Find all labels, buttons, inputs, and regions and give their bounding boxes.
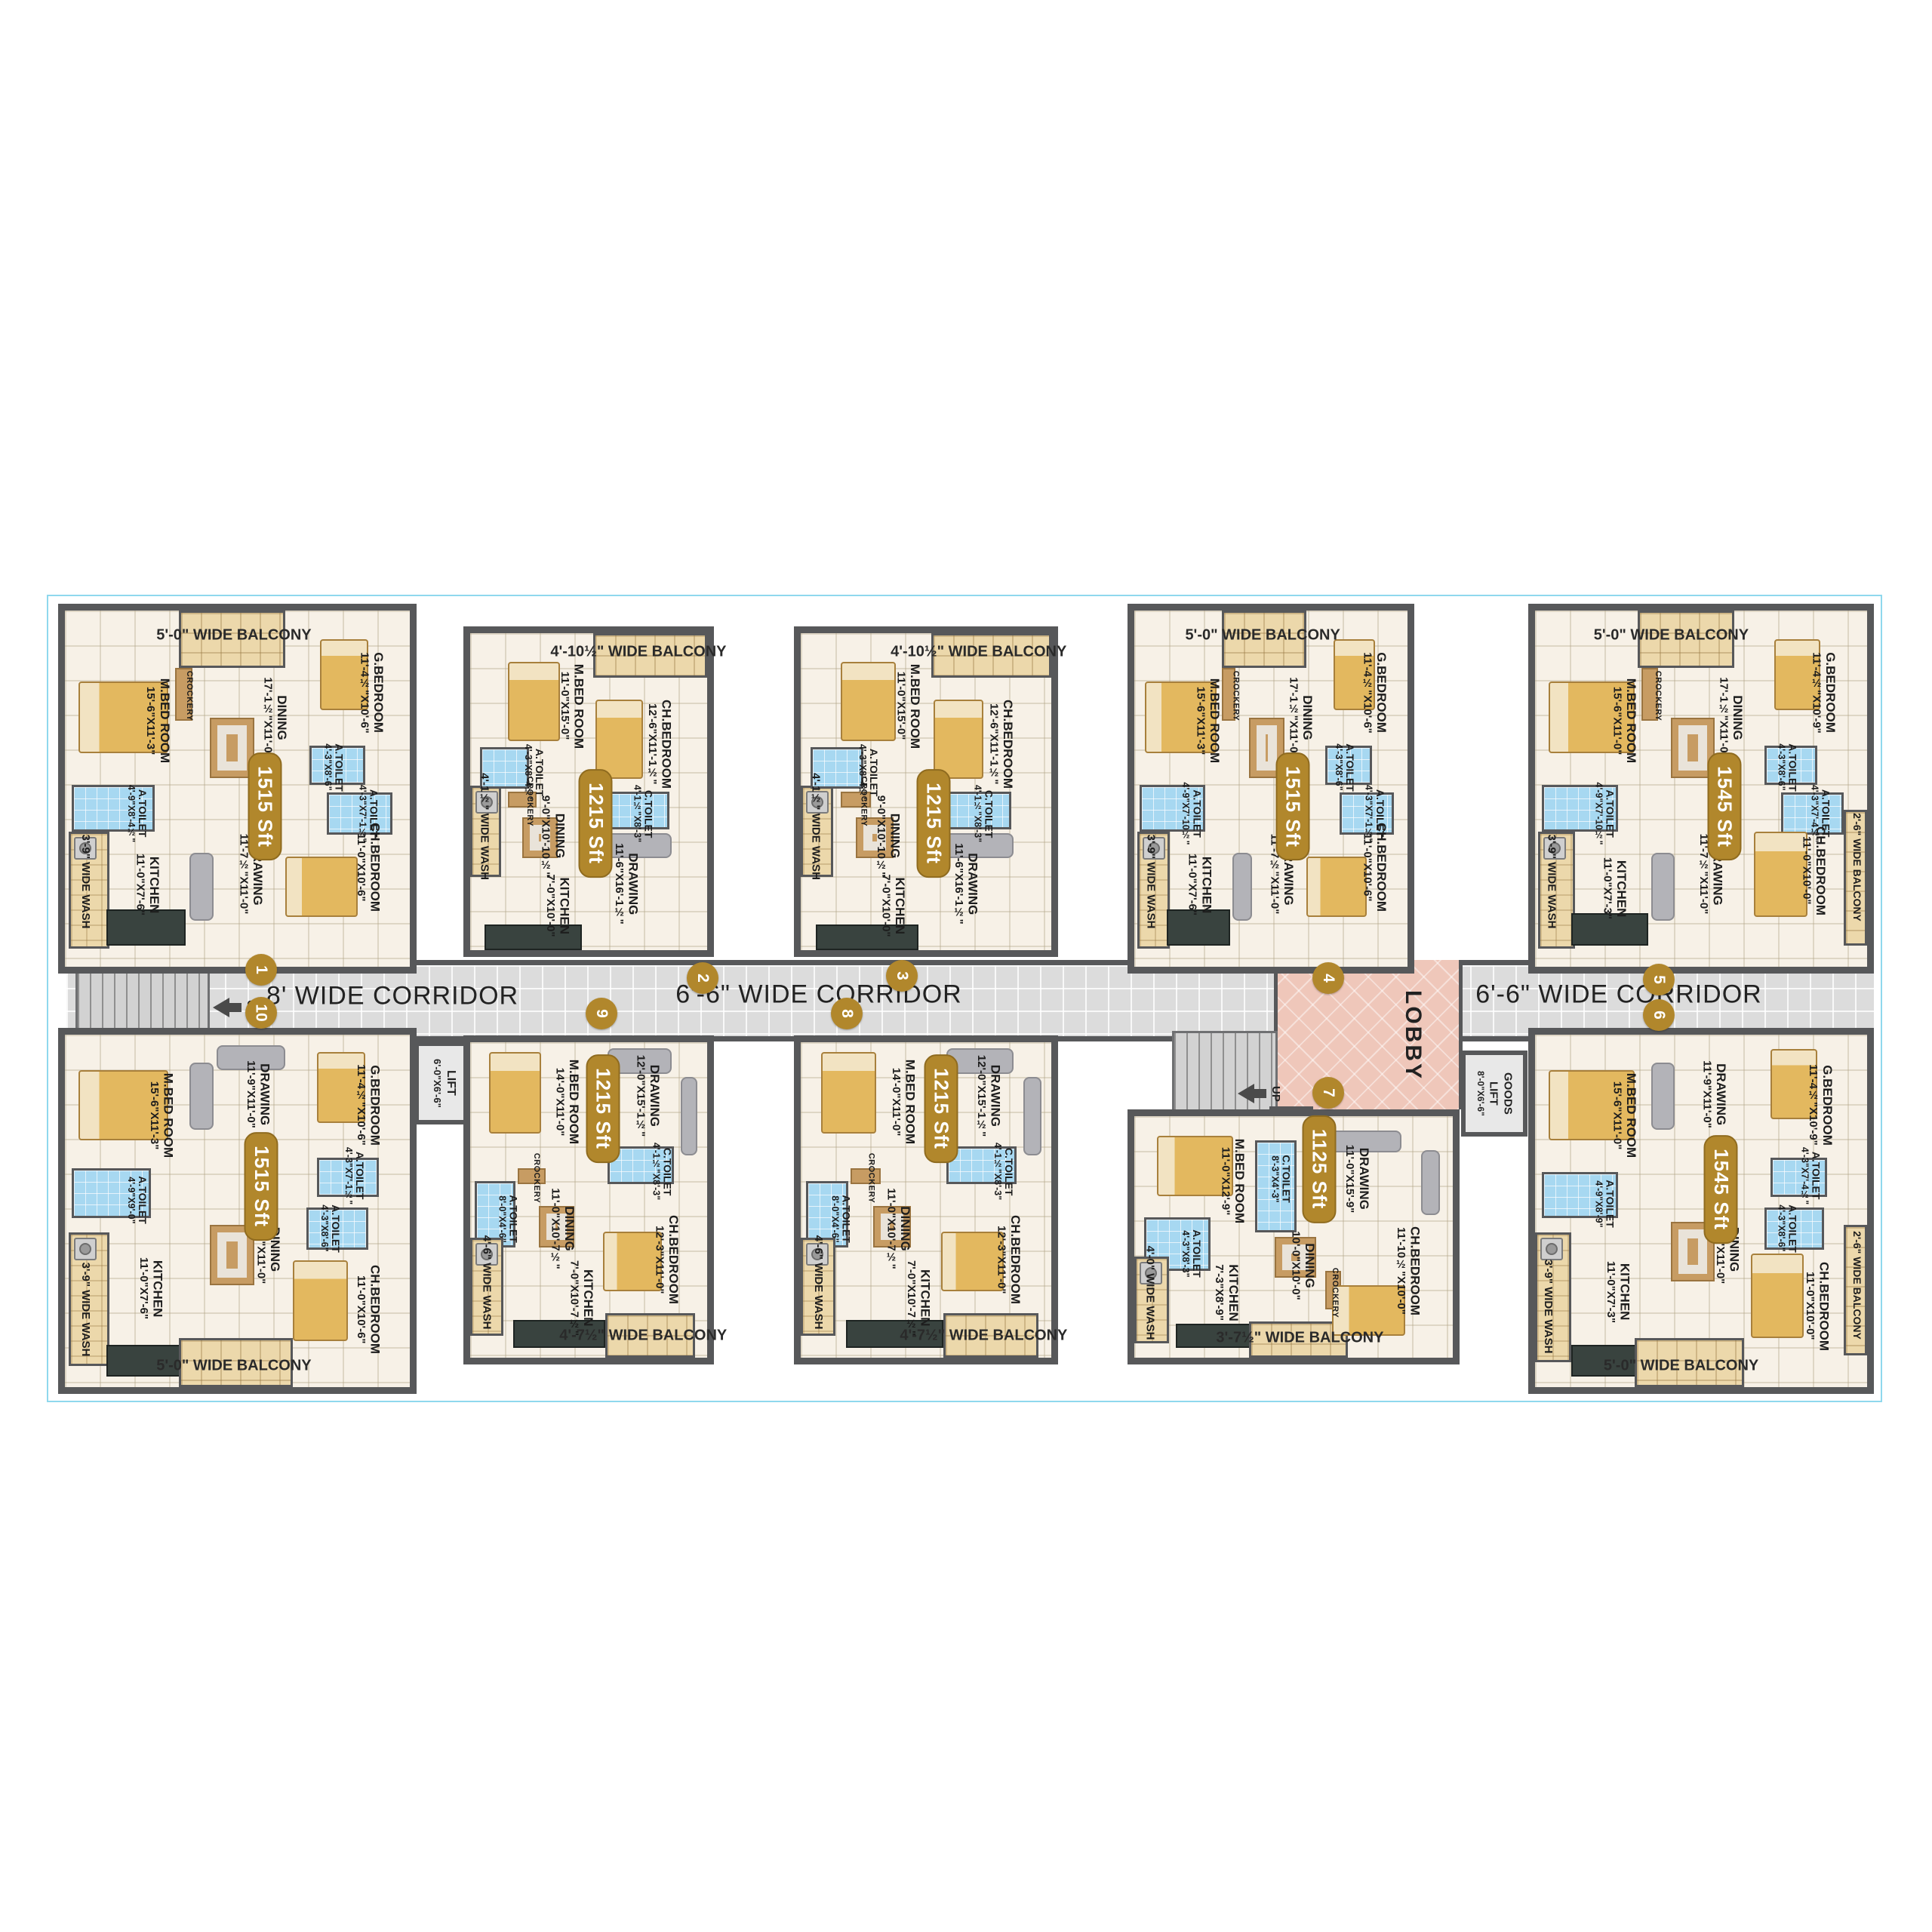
room-label: KITCHEN11'-0"X7'-6" (134, 854, 162, 915)
room-label: M.BED ROOM15'-6"X11'-3" (1194, 678, 1222, 763)
sofa-icon (1651, 853, 1675, 921)
room-label: M.BED ROOM11'-0"X15'-0" (894, 663, 922, 748)
unit-number-circle: 2 (687, 962, 718, 994)
room-label: CH.BEDROOM12'-6"X11'-1½" (646, 700, 674, 789)
toilet-label: C.TOILET4'-1½"X8'-3" (992, 1143, 1015, 1200)
toilet-label: C.TOILET4'-1½"X8'-3" (651, 1143, 673, 1200)
unit-number-circle: 9 (586, 998, 617, 1029)
room-label: M.BED ROOM11'-0"X15'-0" (558, 663, 586, 748)
room-label: DINING11'-0"X10'-7½" (549, 1188, 577, 1269)
room-label: CH.BEDROOM12'-3"X11'-0" (653, 1215, 681, 1304)
room-label: M.BED ROOM11'-0"X12'-9" (1219, 1139, 1247, 1223)
balcony-label: 5'-0" WIDE BALCONY (1594, 627, 1749, 645)
unit-number-circle: 3 (886, 960, 918, 992)
room-label: KITCHEN11'-0"X7'-3" (1601, 857, 1629, 919)
toilet-label: A.TOILET4'-3"X8'-6" (1776, 1204, 1798, 1253)
unit-number-circle: 10 (245, 997, 277, 1029)
room-label: DINING17'-1½"X11'-0" (1287, 677, 1315, 758)
area-badge: 1545 Sft (1704, 1136, 1738, 1244)
bed-icon (1751, 1254, 1804, 1338)
bed-icon (934, 700, 983, 779)
crockery-label: CROCKERY (1231, 671, 1241, 721)
wash-label: 4'-1½" WIDE WASH (809, 773, 822, 880)
room-label: DINING17'-1½"X11'-0" (261, 677, 289, 758)
unit-10: M.BED ROOM15'-6"X11'-3"DRAWING11'-9"X11'… (58, 1028, 417, 1394)
area-badge: 1515 Sft (245, 1132, 278, 1241)
room-label: DINING17'-1½"X11'-0" (1717, 677, 1745, 758)
arrow-icon (1238, 1084, 1254, 1103)
unit-9: M.BED ROOM14'-0"X11'-0"DRAWING12'-0"X15'… (463, 1035, 714, 1364)
room-label: M.BED ROOM14'-0"X11'-0" (890, 1060, 918, 1144)
unit-8: M.BED ROOM14'-0"X11'-0"DRAWING12'-0"X15'… (794, 1035, 1058, 1364)
unit-6: M.BED ROOM15'-6"X11'-0"DRAWING11'-9"X11'… (1528, 1028, 1874, 1394)
goods-lift-label: GOODS (1500, 1071, 1515, 1116)
balcony-label: 5'-0" WIDE BALCONY (1604, 1357, 1758, 1374)
wash-label: 4'-6" WIDE WASH (480, 1235, 493, 1329)
area-badge: 1515 Sft (1275, 752, 1309, 861)
balcony-label: 4'-7½" WIDE BALCONY (559, 1327, 727, 1344)
wash-label: 4'-0" WIDE WASH (1143, 1245, 1156, 1340)
corridor-label-middle: 6'-6" WIDE CORRIDOR (675, 980, 961, 1010)
unit-number-circle: 7 (1312, 1077, 1344, 1109)
area-badge: 1545 Sft (1707, 752, 1741, 861)
room-label: G.BEDROOM11'-4½"X10'-6" (358, 652, 386, 734)
unit-number-circle: 6 (1643, 999, 1675, 1031)
room-label: CH.BEDROOM11'-0"X10'-6" (355, 823, 383, 912)
balcony-label: 5'-0" WIDE BALCONY (156, 1357, 311, 1374)
goods-lift: GOODS LIFT 8'-0"X6'-6" (1461, 1051, 1527, 1137)
corridor-label-right: 6'-6" WIDE CORRIDOR (1475, 980, 1761, 1010)
room-label: M.BED ROOM15'-6"X11'-0" (1611, 678, 1638, 763)
balcony-label: 3'-7½" WIDE BALCONY (1216, 1330, 1383, 1347)
unit-number-circle: 4 (1312, 962, 1344, 994)
room-label: DRAWING11'-9"X11'-0" (1700, 1060, 1728, 1128)
up-arrow-lobby: UP (1238, 1084, 1282, 1103)
room-label: G.BEDROOM11'-4½"X10'-9" (1810, 652, 1838, 734)
room-label: KITCHEN7'-0"X10'-7½" (905, 1260, 933, 1336)
crockery-label: CROCKERY (532, 1152, 542, 1203)
room-label: M.BED ROOM15'-6"X11'-0" (1611, 1073, 1638, 1158)
balcony-label: 4'-10½" WIDE BALCONY (891, 644, 1066, 661)
toilet-label: A.TOILET4'-9"X8'-9" (1593, 1180, 1616, 1228)
room-label: KITCHEN11'-0"X7'-6" (137, 1257, 165, 1319)
sofa-icon (681, 1077, 697, 1156)
up-label: UP (1269, 1086, 1282, 1102)
room-label: DINING9'-0"X10'-10½" (539, 795, 567, 877)
washing-machine-icon (1540, 1238, 1563, 1260)
sofa-icon (1232, 853, 1251, 921)
wash-label: 3'-9" WIDE WASH (1542, 1259, 1555, 1353)
stairs-left (75, 966, 210, 1031)
balcony-label: 5'-0" WIDE BALCONY (156, 627, 311, 645)
sofa-icon (1421, 1150, 1440, 1215)
room-label: KITCHEN7'-3"X8'-9" (1213, 1264, 1241, 1321)
area-badge: 1215 Sft (916, 769, 950, 878)
toilet-label: A.TOILET4'-9"X7'-10½" (1593, 782, 1616, 844)
wash-label: 3'-9" WIDE WASH (79, 834, 92, 928)
sofa-icon (1651, 1063, 1675, 1130)
room-label: M.BED ROOM14'-0"X11'-0" (553, 1060, 581, 1144)
toilet-label: A.TOILET4'-3"X7'-1½" (343, 1147, 366, 1204)
wash-label: 4'-1½" WIDE WASH (478, 773, 491, 880)
bed-icon (595, 700, 643, 779)
sofa-icon (1023, 1077, 1041, 1156)
room-label: DRAWING11'-6"X16'-1½" (952, 843, 980, 924)
lift-dims: 6'-0"X6'-6" (431, 1059, 443, 1108)
unit-5: 5'-0" WIDE BALCONYM.BED ROOM15'-6"X11'-0… (1528, 604, 1874, 974)
bed-icon (1306, 857, 1367, 917)
sofa-icon (189, 853, 214, 921)
bed-icon (489, 1052, 541, 1134)
room-label: CH.BEDROOM11'-10½"X10'-0" (1395, 1226, 1423, 1315)
room-label: CH.BEDROOM11'-0"X10'-6" (1361, 823, 1389, 912)
toilet-label: A.TOILET4'-3"X8'-6" (1334, 743, 1356, 792)
area-badge: 1125 Sft (1302, 1115, 1336, 1223)
room-label: DRAWING12'-0"X15'-1½" (975, 1055, 1003, 1137)
unit-4: 5'-0" WIDE BALCONYM.BED ROOM15'-6"X11'-3… (1128, 604, 1414, 974)
room-label: DRAWING11'-9"X11'-0" (245, 1060, 272, 1128)
wash-label: 3'-9" WIDE WASH (1144, 834, 1157, 928)
unit-1: 5'-0" WIDE BALCONYM.BED ROOM15'-6"X11'-3… (58, 604, 417, 974)
balcony-label: 5'-0" WIDE BALCONY (1185, 627, 1340, 645)
bed-icon (508, 662, 560, 741)
lobby-label: LOBBY (1400, 990, 1426, 1081)
goods-lift-dims: 8'-0"X6'-6" (1475, 1071, 1486, 1116)
toilet-label: A.TOILET8'-0"X4'-6" (497, 1195, 519, 1243)
room-label: CH.BEDROOM11'-0"X10'-0" (1800, 826, 1828, 915)
lift-label: LIFT (443, 1059, 458, 1108)
crockery-label: CROCKERY (866, 1152, 876, 1203)
room-label: KITCHEN7'-0"X10'-7½" (568, 1260, 595, 1336)
toilet-label: A.TOILET4'-3"X7'-4½" (1799, 1147, 1822, 1204)
arrow-icon (213, 998, 229, 1017)
wash-label: 3'-9" WIDE WASH (79, 1263, 92, 1357)
unit-number-circle: 1 (245, 954, 277, 986)
balcony-v-label: 2'-6" WIDE BALCONY (1851, 1231, 1863, 1340)
crockery-label: CROCKERY (525, 776, 534, 826)
bed-icon (841, 662, 896, 741)
unit-number-circle: 8 (831, 998, 863, 1029)
bed-icon (285, 857, 358, 917)
crockery-label: CROCKERY (1653, 671, 1663, 721)
room-label: KITCHEN7'-0"X10'-0" (879, 875, 907, 937)
floor-plan-canvas: UP 8' WIDE CORRIDOR 6'-6" WIDE CORRIDOR … (0, 0, 1932, 1932)
room-label: DRAWING12'-0"X15'-1½" (634, 1055, 662, 1137)
room-label: DINING9'-0"X10'-10½" (875, 795, 903, 877)
toilet-label: A.TOILET4'-9"X9'-0" (126, 1177, 149, 1225)
room-label: DINING11'-0"X10'-7½" (884, 1188, 912, 1269)
room-label: G.BEDROOM11'-4½"X10'-9" (1807, 1065, 1835, 1146)
crockery-label: CROCKERY (1331, 1267, 1340, 1318)
room-label: CH.BEDROOM11'-0"X10'-6" (355, 1265, 383, 1354)
room-label: KITCHEN11'-0"X7'-3" (1604, 1261, 1632, 1323)
bed-icon (821, 1052, 876, 1134)
balcony-label: 4'-7½" WIDE BALCONY (900, 1327, 1067, 1344)
balcony-v-label: 2'-6" WIDE BALCONY (1851, 813, 1863, 921)
toilet-label: A.TOILET4'-9"X7'-10½" (1180, 782, 1203, 844)
room-label: G.BEDROOM11'-4½"X10'-6" (355, 1065, 383, 1146)
unit-3: 4'-10½" WIDE BALCONYM.BED ROOM11'-0"X15'… (794, 626, 1058, 957)
goods-lift-label2: LIFT (1486, 1071, 1500, 1116)
room-label: CH.BEDROOM12'-3"X11'-0" (995, 1215, 1023, 1304)
room-label: DRAWING11'-6"X16'-1½" (613, 843, 641, 924)
wash-label: 3'-9" WIDE WASH (1545, 834, 1558, 928)
lobby (1274, 960, 1463, 1109)
room-label: DINING10'-0"X10'-0" (1289, 1232, 1317, 1300)
room-label: M.BED ROOM15'-6"X11'-3" (144, 678, 172, 763)
toilet-label: C.TOILET8'-3"X4'-3" (1269, 1155, 1292, 1203)
toilet-label: A.TOILET4'-3"X8'-6" (319, 1204, 342, 1253)
bed-icon (293, 1260, 348, 1341)
room-label: M.BED ROOM15'-6"X11'-3" (148, 1073, 176, 1158)
area-badge: 1215 Sft (924, 1054, 958, 1163)
washing-machine-icon (74, 1238, 97, 1260)
sofa-icon (189, 1063, 214, 1130)
balcony-label: 4'-10½" WIDE BALCONY (550, 644, 726, 661)
room-label: KITCHEN11'-0"X7'-6" (1186, 854, 1214, 915)
toilet-label: A.TOILET4'-3"X8'-3" (1180, 1230, 1203, 1278)
room-label: CH.BEDROOM11'-0"X10'-0" (1804, 1262, 1832, 1351)
unit-7: M.BED ROOM11'-0"X12'-9"C.TOILET8'-3"X4'-… (1128, 1109, 1460, 1364)
room-label: DRAWING11'-0"X15'-9" (1343, 1145, 1371, 1214)
arrow-shaft (229, 1003, 241, 1012)
area-badge: 1215 Sft (586, 1054, 620, 1163)
crockery-label: CROCKERY (184, 671, 194, 721)
area-badge: 1215 Sft (579, 769, 613, 878)
room-label: KITCHEN7'-0"X10'-0" (544, 875, 572, 937)
wash-label: 4'-6" WIDE WASH (812, 1235, 825, 1329)
room-label: G.BEDROOM11'-4½"X10'-6" (1361, 652, 1389, 734)
corridor-label-left: 8' WIDE CORRIDOR (266, 982, 518, 1011)
toilet-label: C.TOILET4'-1½"X8'-3" (632, 785, 654, 842)
unit-number-circle: 5 (1643, 964, 1675, 995)
toilet-label: A.TOILET8'-0"X4'-6" (829, 1195, 852, 1243)
crockery-label: CROCKERY (859, 776, 869, 826)
toilet-label: C.TOILET4'-1½"X8'-3" (972, 785, 995, 842)
toilet-label: A.TOILET4'-3"X8'-6" (322, 743, 345, 792)
area-badge: 1515 Sft (248, 752, 282, 861)
unit-2: 4'-10½" WIDE BALCONYM.BED ROOM11'-0"X15'… (463, 626, 714, 957)
toilet-label: A.TOILET4'-9"X8'-4½" (126, 785, 149, 842)
toilet-label: A.TOILET4'-3"X8'-6" (1776, 743, 1798, 792)
arrow-shaft (1254, 1089, 1266, 1098)
room-label: CH.BEDROOM12'-6"X11'-1½" (987, 700, 1015, 789)
